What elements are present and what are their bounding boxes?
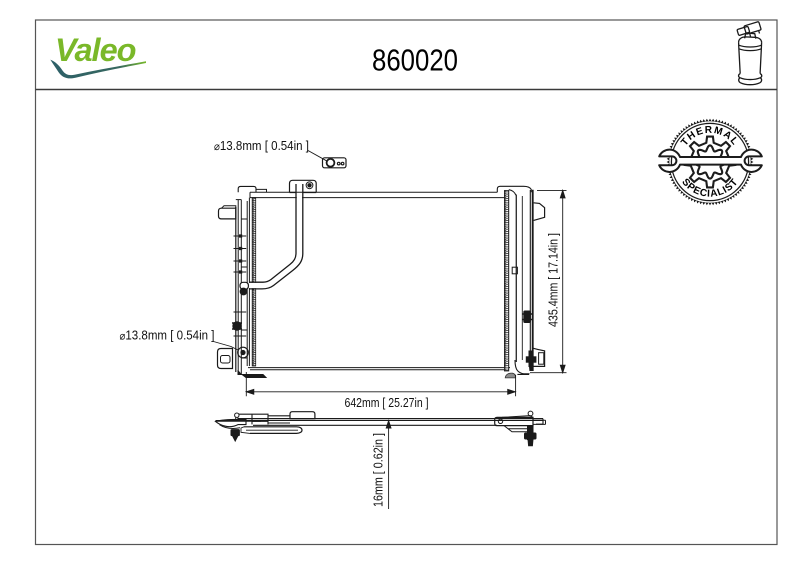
svg-text:860020: 860020 — [372, 43, 458, 78]
svg-text:⌀13.8mm [ 0.54in ]: ⌀13.8mm [ 0.54in ] — [214, 138, 309, 153]
svg-text:16mm [ 0.62in ]: 16mm [ 0.62in ] — [372, 433, 386, 507]
svg-text:⌀13.8mm [ 0.54in ]: ⌀13.8mm [ 0.54in ] — [120, 328, 215, 343]
svg-text:435.4mm [ 17.14in ]: 435.4mm [ 17.14in ] — [547, 233, 561, 327]
svg-text:Valeo: Valeo — [55, 32, 136, 68]
svg-text:642mm [ 25.27in ]: 642mm [ 25.27in ] — [345, 396, 429, 410]
